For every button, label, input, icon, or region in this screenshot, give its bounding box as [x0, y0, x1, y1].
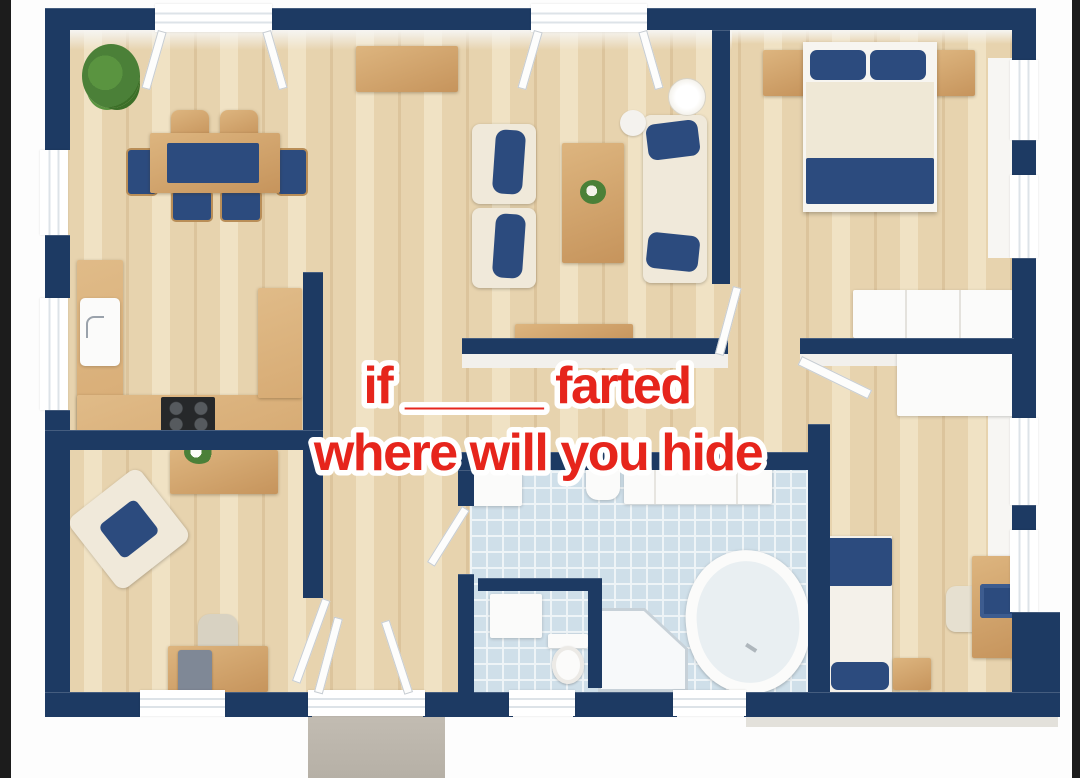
wall-segment [225, 692, 312, 717]
wall-segment [588, 578, 602, 688]
patio-door-opening [531, 4, 647, 32]
side-table [620, 110, 646, 136]
sofa-pillow [645, 231, 700, 272]
sofa-pillow [645, 119, 701, 161]
left-black-bar [0, 0, 11, 778]
patio-door-opening [155, 4, 272, 32]
potted-plant [82, 44, 140, 108]
bed-pillow [831, 662, 889, 690]
window [40, 150, 68, 235]
wardrobe [853, 290, 1013, 338]
sideboard [356, 46, 458, 92]
window [1010, 175, 1038, 258]
wall-segment [744, 692, 1060, 717]
wall-segment [1012, 258, 1036, 420]
dresser [897, 350, 1015, 416]
entry-door-opening [308, 690, 425, 716]
armchair-cushion [492, 213, 526, 279]
bed-pillow [870, 50, 926, 80]
wall-segment [45, 8, 70, 150]
wall-segment [45, 235, 70, 298]
dining-chair [220, 190, 262, 222]
wall-segment [45, 410, 70, 715]
wall-segment [808, 424, 830, 692]
wall-segment [458, 470, 474, 506]
wall-segment [573, 692, 677, 717]
faucet-icon [86, 316, 104, 338]
bed-pillow [810, 50, 866, 80]
entry-porch [308, 716, 445, 778]
floor-lamp [668, 78, 706, 116]
computer-tower [178, 650, 212, 692]
bed-blanket [828, 538, 892, 586]
wall-segment [45, 692, 140, 717]
nightstand [763, 50, 805, 96]
bathtub-basin [690, 555, 806, 689]
kitchen-counter [258, 288, 302, 398]
right-black-bar [1072, 0, 1080, 778]
window [1010, 418, 1038, 505]
wall-segment [458, 452, 812, 470]
wall-segment [712, 8, 1032, 30]
toilet-bowl [552, 646, 584, 684]
wall-sill [462, 354, 728, 368]
window-sill-shelf [988, 58, 1012, 258]
bath-cabinet [490, 594, 542, 638]
dining-table-runner [167, 143, 259, 183]
armchair-cushion [492, 129, 526, 195]
window [1010, 60, 1038, 140]
wall-segment [45, 430, 323, 450]
table-plant [580, 180, 606, 204]
wall-segment [423, 692, 513, 717]
wall-segment [462, 338, 728, 354]
nightstand [893, 658, 931, 690]
dining-chair [171, 190, 213, 222]
nightstand [933, 50, 975, 96]
outer-shadow [746, 717, 1058, 727]
floorplan-meme-image: if _____ farted where will you hide [0, 0, 1080, 778]
wall-segment [1012, 8, 1036, 60]
wall-segment [1012, 505, 1036, 532]
window [509, 690, 575, 716]
window [1010, 530, 1038, 612]
wall-segment [458, 574, 474, 694]
bed-blanket [806, 158, 934, 204]
wall-segment [800, 338, 1014, 354]
window [140, 690, 225, 716]
dining-chair [276, 148, 308, 196]
wall-segment [712, 30, 730, 284]
window [673, 690, 746, 716]
wall-segment [478, 578, 600, 591]
wall-segment [645, 8, 712, 30]
bed-duvet [806, 82, 934, 160]
wall-segment [1012, 140, 1036, 175]
wall-segment [270, 8, 533, 30]
window [40, 298, 68, 410]
